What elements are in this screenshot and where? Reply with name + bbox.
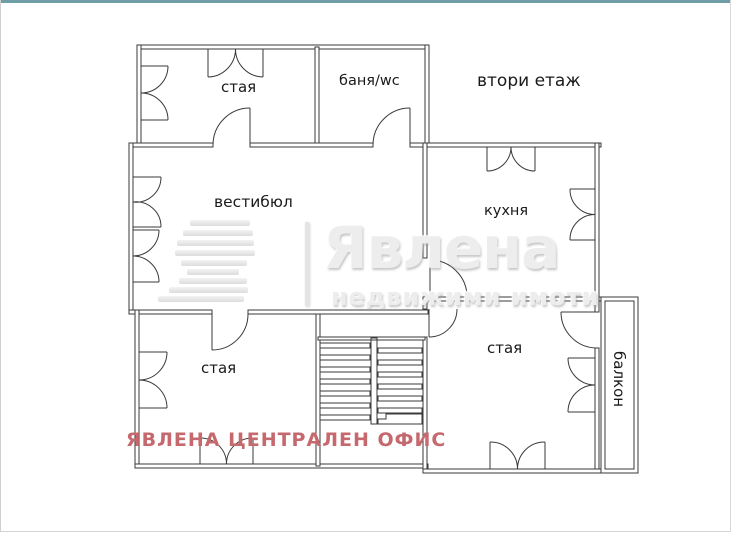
door-bathroom	[373, 108, 410, 145]
floor-title: втори етаж	[477, 71, 581, 91]
stair-treads-right	[378, 348, 422, 424]
window-top-left-room-left	[141, 66, 168, 120]
room-label-bottom-left: стая	[201, 359, 236, 377]
door-balcony	[561, 312, 597, 348]
room-label-bottom-right: стая	[487, 339, 522, 357]
window-bottom-right-room-bottom	[490, 442, 545, 469]
staircase	[318, 337, 425, 424]
watermark-brand-text: Явлена	[323, 214, 559, 282]
door-bottom-right-room	[429, 309, 457, 337]
door-bottom-left-room	[212, 314, 248, 350]
stair-treads-left	[320, 343, 370, 420]
window-bottom-left-room-left	[139, 352, 167, 408]
office-footer-text: ЯВЛЕНА ЦЕНТРАЛЕН ОФИС	[126, 429, 446, 451]
room-label-top-left: стая	[221, 78, 256, 96]
window-kitchen-top	[487, 147, 535, 171]
window-top-left-room-top	[208, 49, 263, 77]
watermark-divider	[305, 222, 309, 306]
window-kitchen-right	[570, 189, 595, 240]
watermark-tagline-text: недвижими имоти	[331, 283, 599, 311]
window-bottom-right-room-right	[568, 358, 595, 412]
room-label-bathroom: баня/wc	[339, 73, 400, 89]
watermark-logo-icon	[155, 216, 255, 308]
door-room-top-left	[213, 108, 250, 145]
room-label-kitchen: кухня	[484, 203, 528, 219]
room-label-vestibule: вестибюл	[214, 193, 293, 211]
room-label-balcony: балкон	[610, 351, 628, 407]
